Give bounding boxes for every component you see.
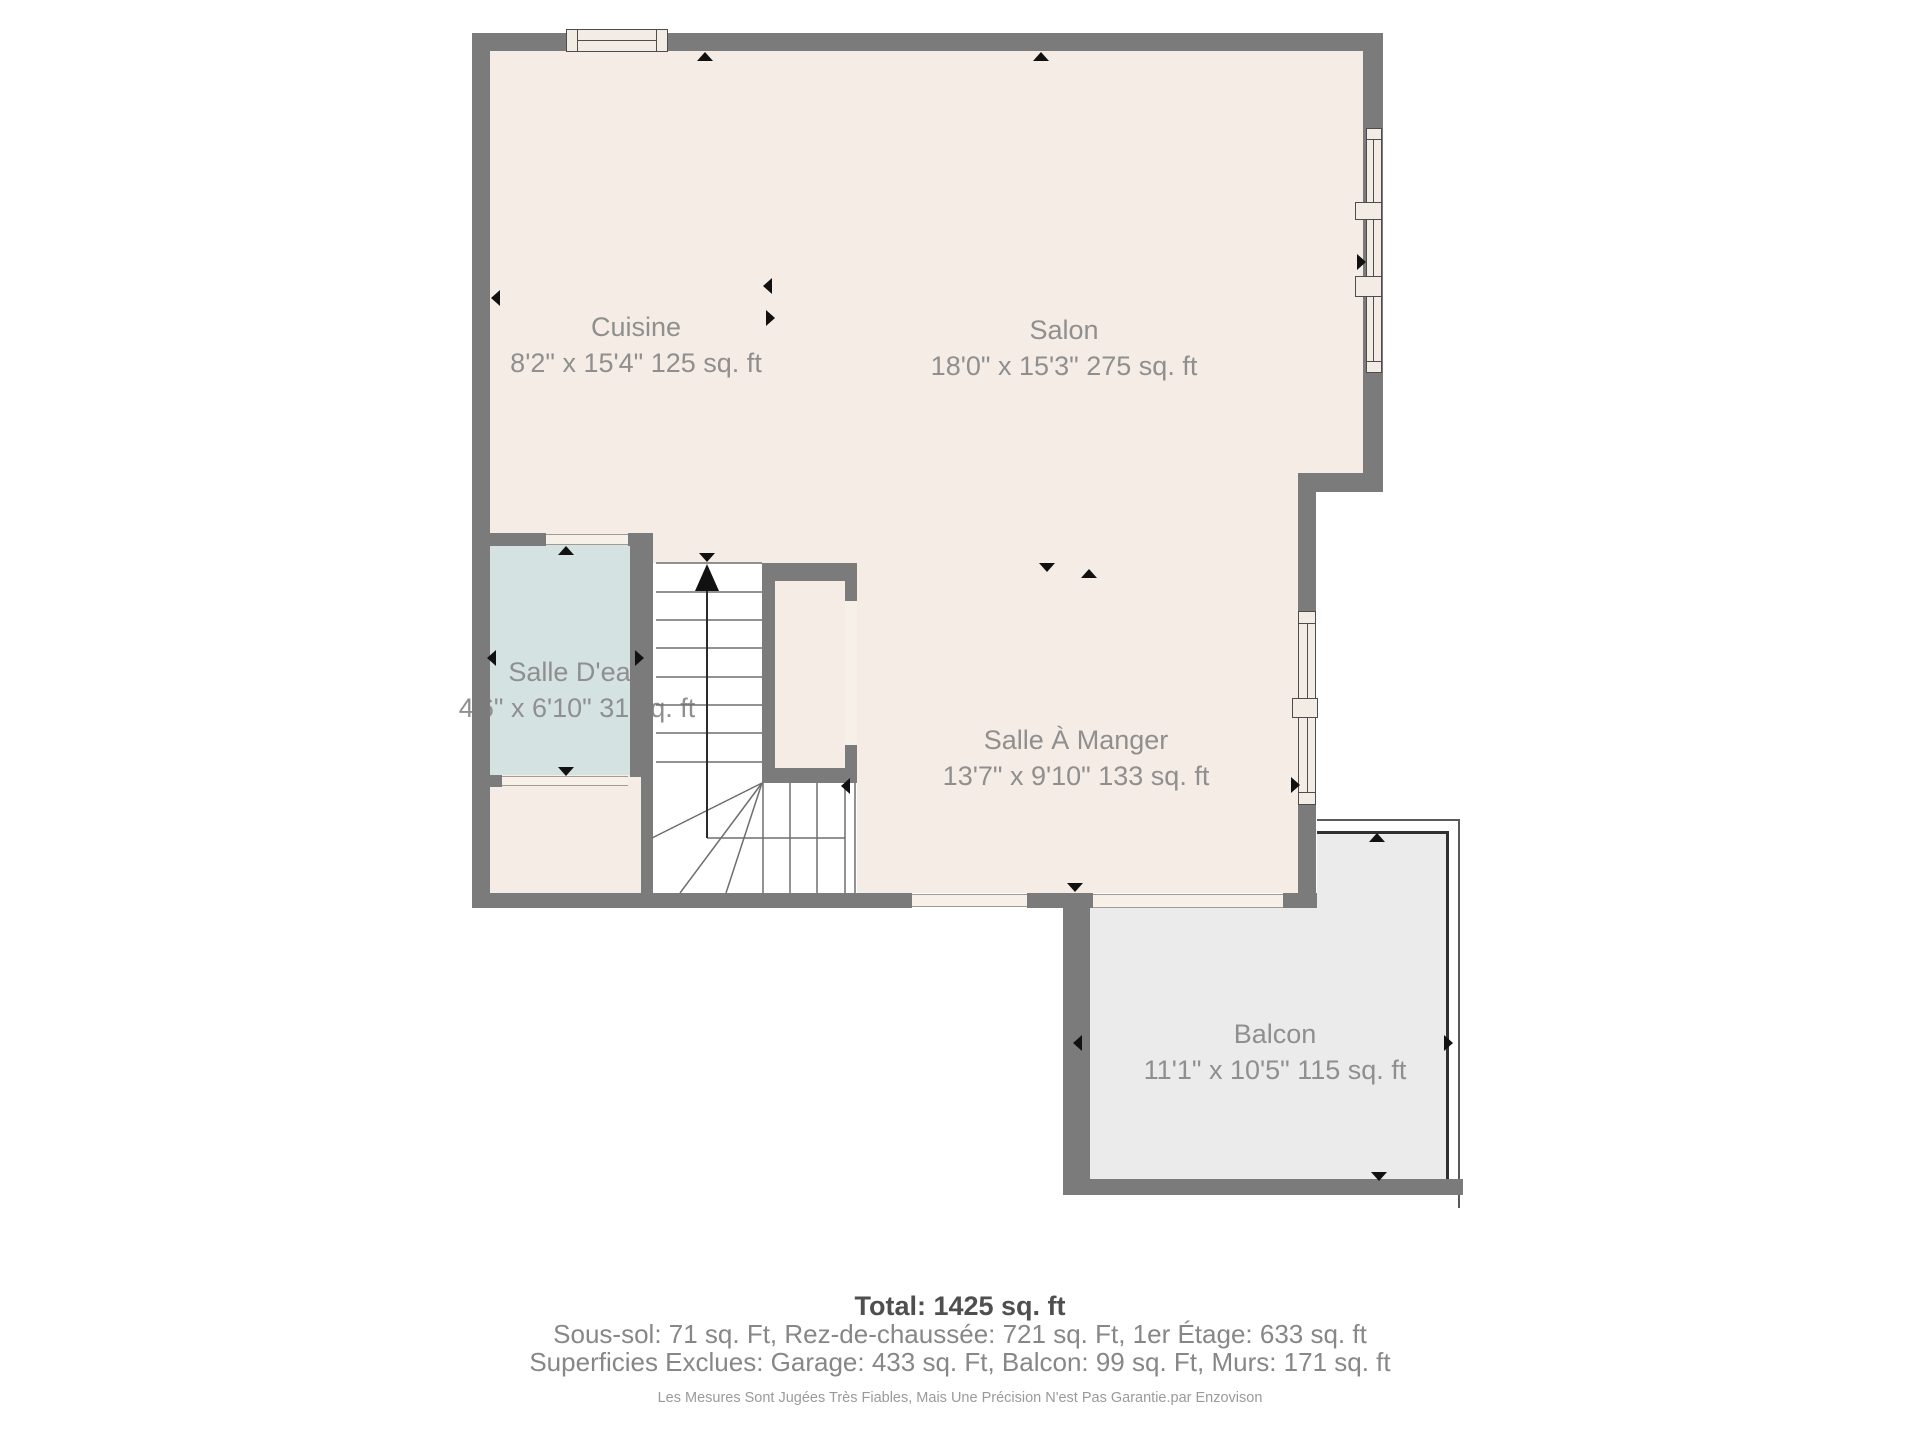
window-salon-cap: [1366, 128, 1382, 140]
wall-bathroom-top-a: [472, 533, 546, 546]
balcony-edge-right: [1446, 831, 1449, 1179]
window-top-cap: [656, 29, 668, 52]
room-dims: 11'1" x 10'5" 115 sq. ft: [1144, 1052, 1407, 1088]
room-dims: 18'0" x 15'3" 275 sq. ft: [931, 348, 1198, 384]
room-name: Cuisine: [510, 309, 762, 345]
wall-bottom-c: [1283, 893, 1317, 908]
window-dining-cap: [1298, 611, 1316, 624]
room-label-balcon: Balcon 11'1" x 10'5" 115 sq. ft: [1144, 1016, 1407, 1088]
wall-bottom-a: [472, 893, 912, 908]
balcony-railing-top: [1317, 819, 1460, 821]
wall-stairbox-left: [762, 563, 775, 783]
room-label-salon: Salon 18'0" x 15'3" 275 sq. ft: [931, 312, 1198, 384]
room-name: Salle D'eau: [459, 654, 696, 690]
room-dims: 4'6" x 6'10" 31 sq. ft: [459, 690, 696, 726]
stairbox-right-opening: [845, 601, 857, 745]
main-floor-upper: [490, 51, 1363, 492]
window-top-cap: [566, 29, 578, 52]
wall-stair-left: [641, 777, 653, 893]
wall-bathroom-right: [630, 533, 653, 777]
balcony-railing-right: [1458, 819, 1460, 1208]
wall-bathroom-bottom-stub: [490, 775, 502, 787]
balcony-floor: [1317, 834, 1446, 909]
stair-box-floor: [775, 581, 845, 768]
total-area: Total: 1425 sq. ft: [0, 1292, 1920, 1320]
room-name: Salle À Manger: [943, 722, 1210, 758]
wall-stairbox-right-top: [845, 563, 857, 601]
window-dining-cap: [1298, 792, 1316, 805]
room-label-salle-deau: Salle D'eau 4'6" x 6'10" 31 sq. ft: [459, 654, 696, 726]
window-salon-mullion: [1373, 140, 1374, 361]
window-top-mullion: [567, 40, 667, 41]
room-name: Salon: [931, 312, 1198, 348]
wall-stairbox-top: [762, 563, 857, 581]
wall-stairbox-bottom: [762, 768, 857, 783]
balcony-door-opening: [1093, 894, 1283, 908]
window-salon-crossbar: [1355, 276, 1382, 297]
opening-bottom: [912, 894, 1027, 907]
wall-right-inset-a: [1298, 492, 1316, 613]
room-dims: 13'7" x 9'10" 133 sq. ft: [943, 758, 1210, 794]
excluded-areas: Superficies Exclues: Garage: 433 sq. Ft,…: [0, 1348, 1920, 1376]
wall-left: [472, 33, 490, 908]
wall-balcony-bottom: [1063, 1179, 1463, 1195]
room-name: Balcon: [1144, 1016, 1407, 1052]
room-label-cuisine: Cuisine 8'2" x 15'4" 125 sq. ft: [510, 309, 762, 381]
wall-jog: [1298, 473, 1383, 492]
window-salon-crossbar: [1355, 202, 1382, 220]
window-salon-cap: [1366, 361, 1382, 373]
wall-balcony-left: [1063, 893, 1090, 1195]
window-dining-crossbar: [1292, 698, 1318, 718]
bathroom-door-top: [546, 534, 628, 545]
room-label-salle-a-manger: Salle À Manger 13'7" x 9'10" 133 sq. ft: [943, 722, 1210, 794]
wall-stairbox-right-bot: [845, 745, 857, 783]
disclaimer-text: Les Mesures Sont Jugées Très Fiables, Ma…: [0, 1388, 1920, 1408]
floor-plan: Cuisine 8'2" x 15'4" 125 sq. ft Salon 18…: [0, 0, 1920, 1440]
floors-areas: Sous-sol: 71 sq. Ft, Rez-de-chaussée: 72…: [0, 1320, 1920, 1348]
bathroom-door-bottom: [502, 776, 628, 786]
area-summary: Total: 1425 sq. ft Sous-sol: 71 sq. Ft, …: [0, 1292, 1920, 1408]
window-salon: [1366, 128, 1382, 373]
room-dims: 8'2" x 15'4" 125 sq. ft: [510, 345, 762, 381]
